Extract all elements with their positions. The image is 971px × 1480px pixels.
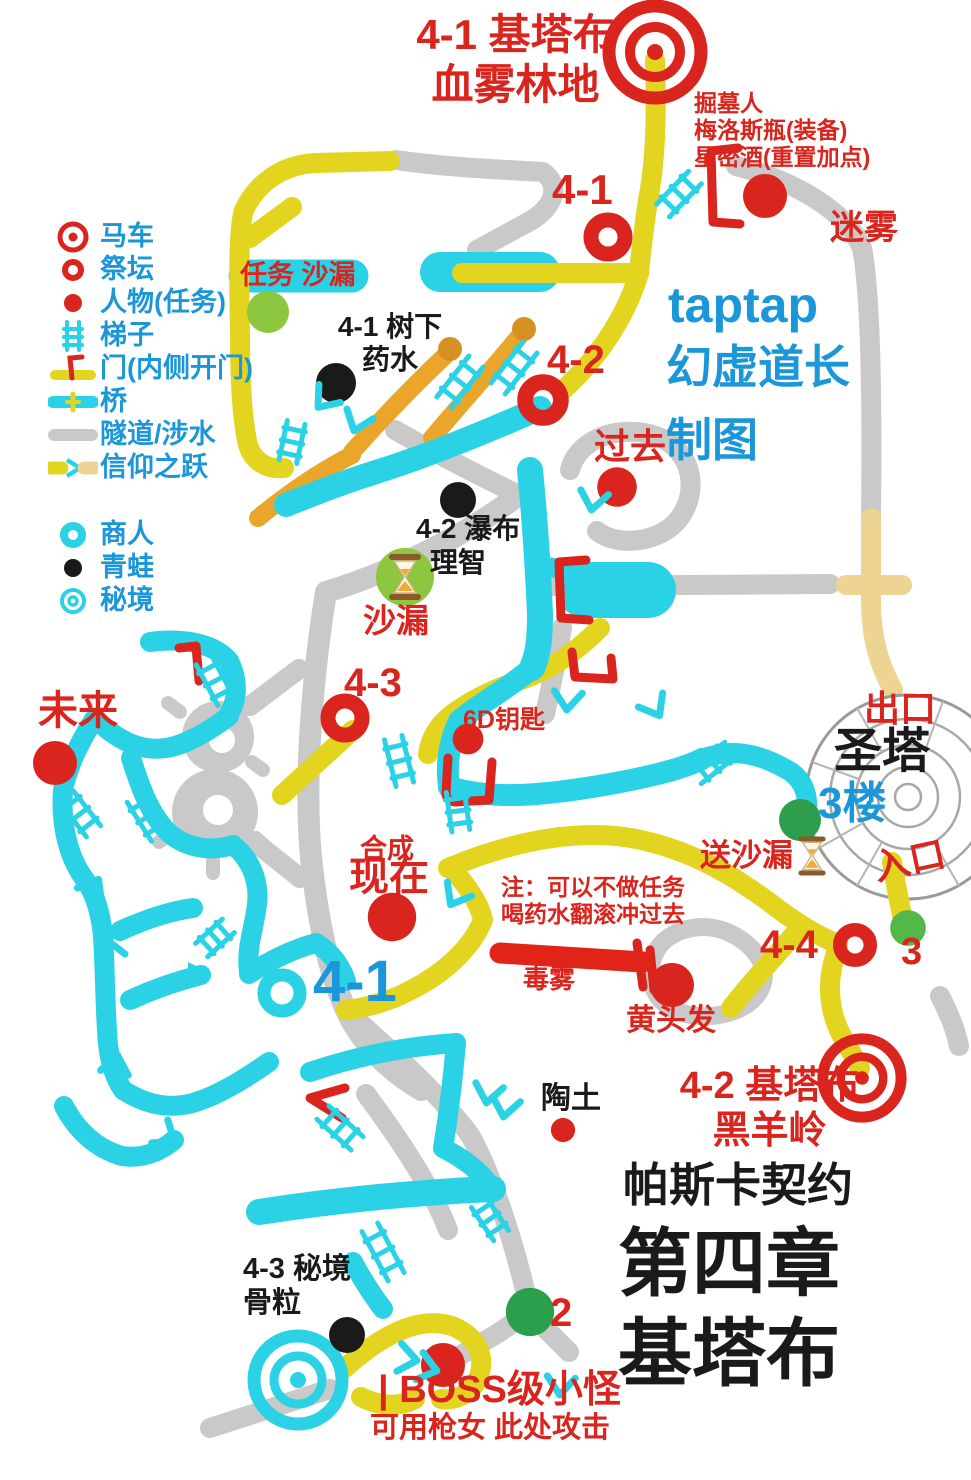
yellow-hair-label: 黄头发 (626, 1003, 716, 1038)
person-dot-icon (650, 963, 694, 1007)
legend-label: 人物(任务) (100, 289, 226, 316)
legend-label: 门(内侧开门) (100, 355, 253, 382)
key-6d-label: 6D钥匙 (463, 706, 545, 736)
bridge-icon (48, 385, 98, 419)
legend-item-信仰之跃: 信仰之跃 (48, 451, 253, 484)
gravedigger-note: 掘墓人 梅洛斯瓶(装备) 星密酒(重置加点) (694, 90, 870, 171)
altar-41-label: 4-1 (552, 165, 613, 215)
skip-note: 注：可以不做任务 喝药水翻滚冲过去 (501, 874, 685, 928)
credit-mapped-by: 制图 (666, 413, 758, 467)
clay-label: 陶土 (541, 1081, 601, 1116)
legend-label: 梯子 (100, 322, 154, 349)
altar-ring-icon (591, 220, 625, 254)
legend-item-人物(任务): 人物(任务) (48, 286, 253, 319)
altar-43-label: 4-3 (344, 660, 402, 707)
merchant-ring-icon (264, 975, 300, 1011)
present-label: 现在 (349, 854, 429, 901)
boss-tip-label: 可用枪女 此处攻击 (370, 1411, 610, 1445)
boss-label: | BOSS级小怪 (378, 1368, 621, 1413)
hourglass-icon (801, 839, 823, 873)
ford-paths (846, 518, 902, 690)
legend-label: 桥 (100, 388, 127, 415)
person-dot-icon (33, 741, 77, 785)
arrow-icon (490, 1097, 521, 1120)
hourglass-label: 沙漏 (363, 602, 429, 641)
legend-label: 信仰之跃 (100, 454, 208, 481)
legend-label: 马车 (100, 223, 154, 250)
legend-item-梯子: 梯子 (48, 319, 253, 352)
arrow-icon (638, 693, 671, 723)
green-dot-icon (247, 291, 289, 333)
person-dot-icon (551, 1118, 575, 1142)
arrow-icon (553, 691, 582, 711)
area-41-blue-label: 4-1 (313, 948, 397, 1016)
legend-npcs: 商人青蛙秘境 (48, 518, 154, 617)
door-icon (48, 352, 98, 386)
deliver-hourglass-label: 送沙漏 (700, 838, 793, 875)
tree-potion-note: 4-1 树下 药水 (330, 310, 450, 376)
legend-label: 商人 (100, 521, 154, 548)
legend-item-祭坛: 祭坛 (48, 253, 253, 286)
past-label: 过去 (594, 426, 666, 468)
legend-item-青蛙: 青蛙 (48, 551, 154, 584)
carriage-target-icon (48, 220, 98, 254)
legend-label: 祭坛 (100, 256, 154, 283)
green-dot-icon (506, 1288, 554, 1336)
map-canvas: 马车祭坛人物(任务)梯子门(内侧开门)桥隧道/涉水信仰之跃 商人青蛙秘境 4-1… (0, 0, 971, 1480)
secret-realm-icon (48, 584, 98, 618)
legend-item-马车: 马车 (48, 220, 253, 253)
ladder-icon (655, 170, 703, 218)
legend-label: 秘境 (100, 587, 154, 614)
legend-item-桥: 桥 (48, 385, 253, 418)
hourglass-icon (376, 548, 434, 606)
ladder-icon (48, 319, 98, 353)
altar-ring-icon (840, 930, 871, 961)
waterfall-note: 4-2 瀑布 (416, 512, 520, 545)
legend-symbols: 马车祭坛人物(任务)梯子门(内侧开门)桥隧道/涉水信仰之跃 (48, 220, 253, 484)
ladder-icon (444, 790, 471, 833)
frog-dot-icon (48, 551, 98, 585)
secret-realm-note: 4-3 秘境 骨粒 (243, 1252, 351, 1320)
leap-of-faith-icon (48, 451, 98, 485)
future-label: 未来 (38, 688, 118, 735)
sanity-note: 理智 (430, 546, 486, 579)
poison-mist-path (500, 953, 643, 962)
green-dot-icon (779, 799, 821, 841)
area-title-42: 4-2 基塔布 黑羊岭 (642, 1064, 897, 1154)
legend-item-商人: 商人 (48, 518, 154, 551)
quest-hourglass-label: 任务 沙漏 (240, 260, 356, 292)
holy-tower-label: 圣塔 (834, 724, 930, 781)
mist-label: 迷雾 (830, 208, 898, 248)
credit-author: 幻虚道长 (666, 340, 850, 394)
merchant-ring-icon (48, 518, 98, 552)
area-title-41: 4-1 基塔布 血雾林地 (413, 10, 618, 109)
altar-42-label: 4-2 (547, 337, 605, 384)
legend-item-隧道/涉水: 隧道/涉水 (48, 418, 253, 451)
num-2-label: 2 (550, 1290, 572, 1337)
person-dot-icon (743, 174, 787, 218)
altar-ring-icon (48, 253, 98, 287)
person-dot-icon (48, 286, 98, 320)
altar-44-label: 4-4 (760, 922, 818, 969)
legend-label: 隧道/涉水 (100, 421, 216, 448)
num-3-label: 3 (901, 930, 922, 975)
tunnel-icon (48, 418, 98, 452)
credit-taptap: taptap (668, 276, 818, 335)
chapter-area-title: 基塔布 (618, 1310, 840, 1397)
chapter-title: 第四章 (618, 1220, 840, 1307)
floor-3-label: 3楼 (818, 778, 886, 830)
ladder-icon (194, 918, 235, 958)
poison-mist-label: 毒雾 (523, 964, 575, 995)
game-title: 帕斯卡契约 (623, 1158, 853, 1212)
legend-label: 青蛙 (100, 554, 154, 581)
legend-item-秘境: 秘境 (48, 584, 154, 617)
frog-dot-icon (329, 1317, 365, 1353)
legend-item-门(内侧开门): 门(内侧开门) (48, 352, 253, 385)
ladder-icon (277, 420, 307, 464)
ladder-icon (383, 735, 416, 787)
